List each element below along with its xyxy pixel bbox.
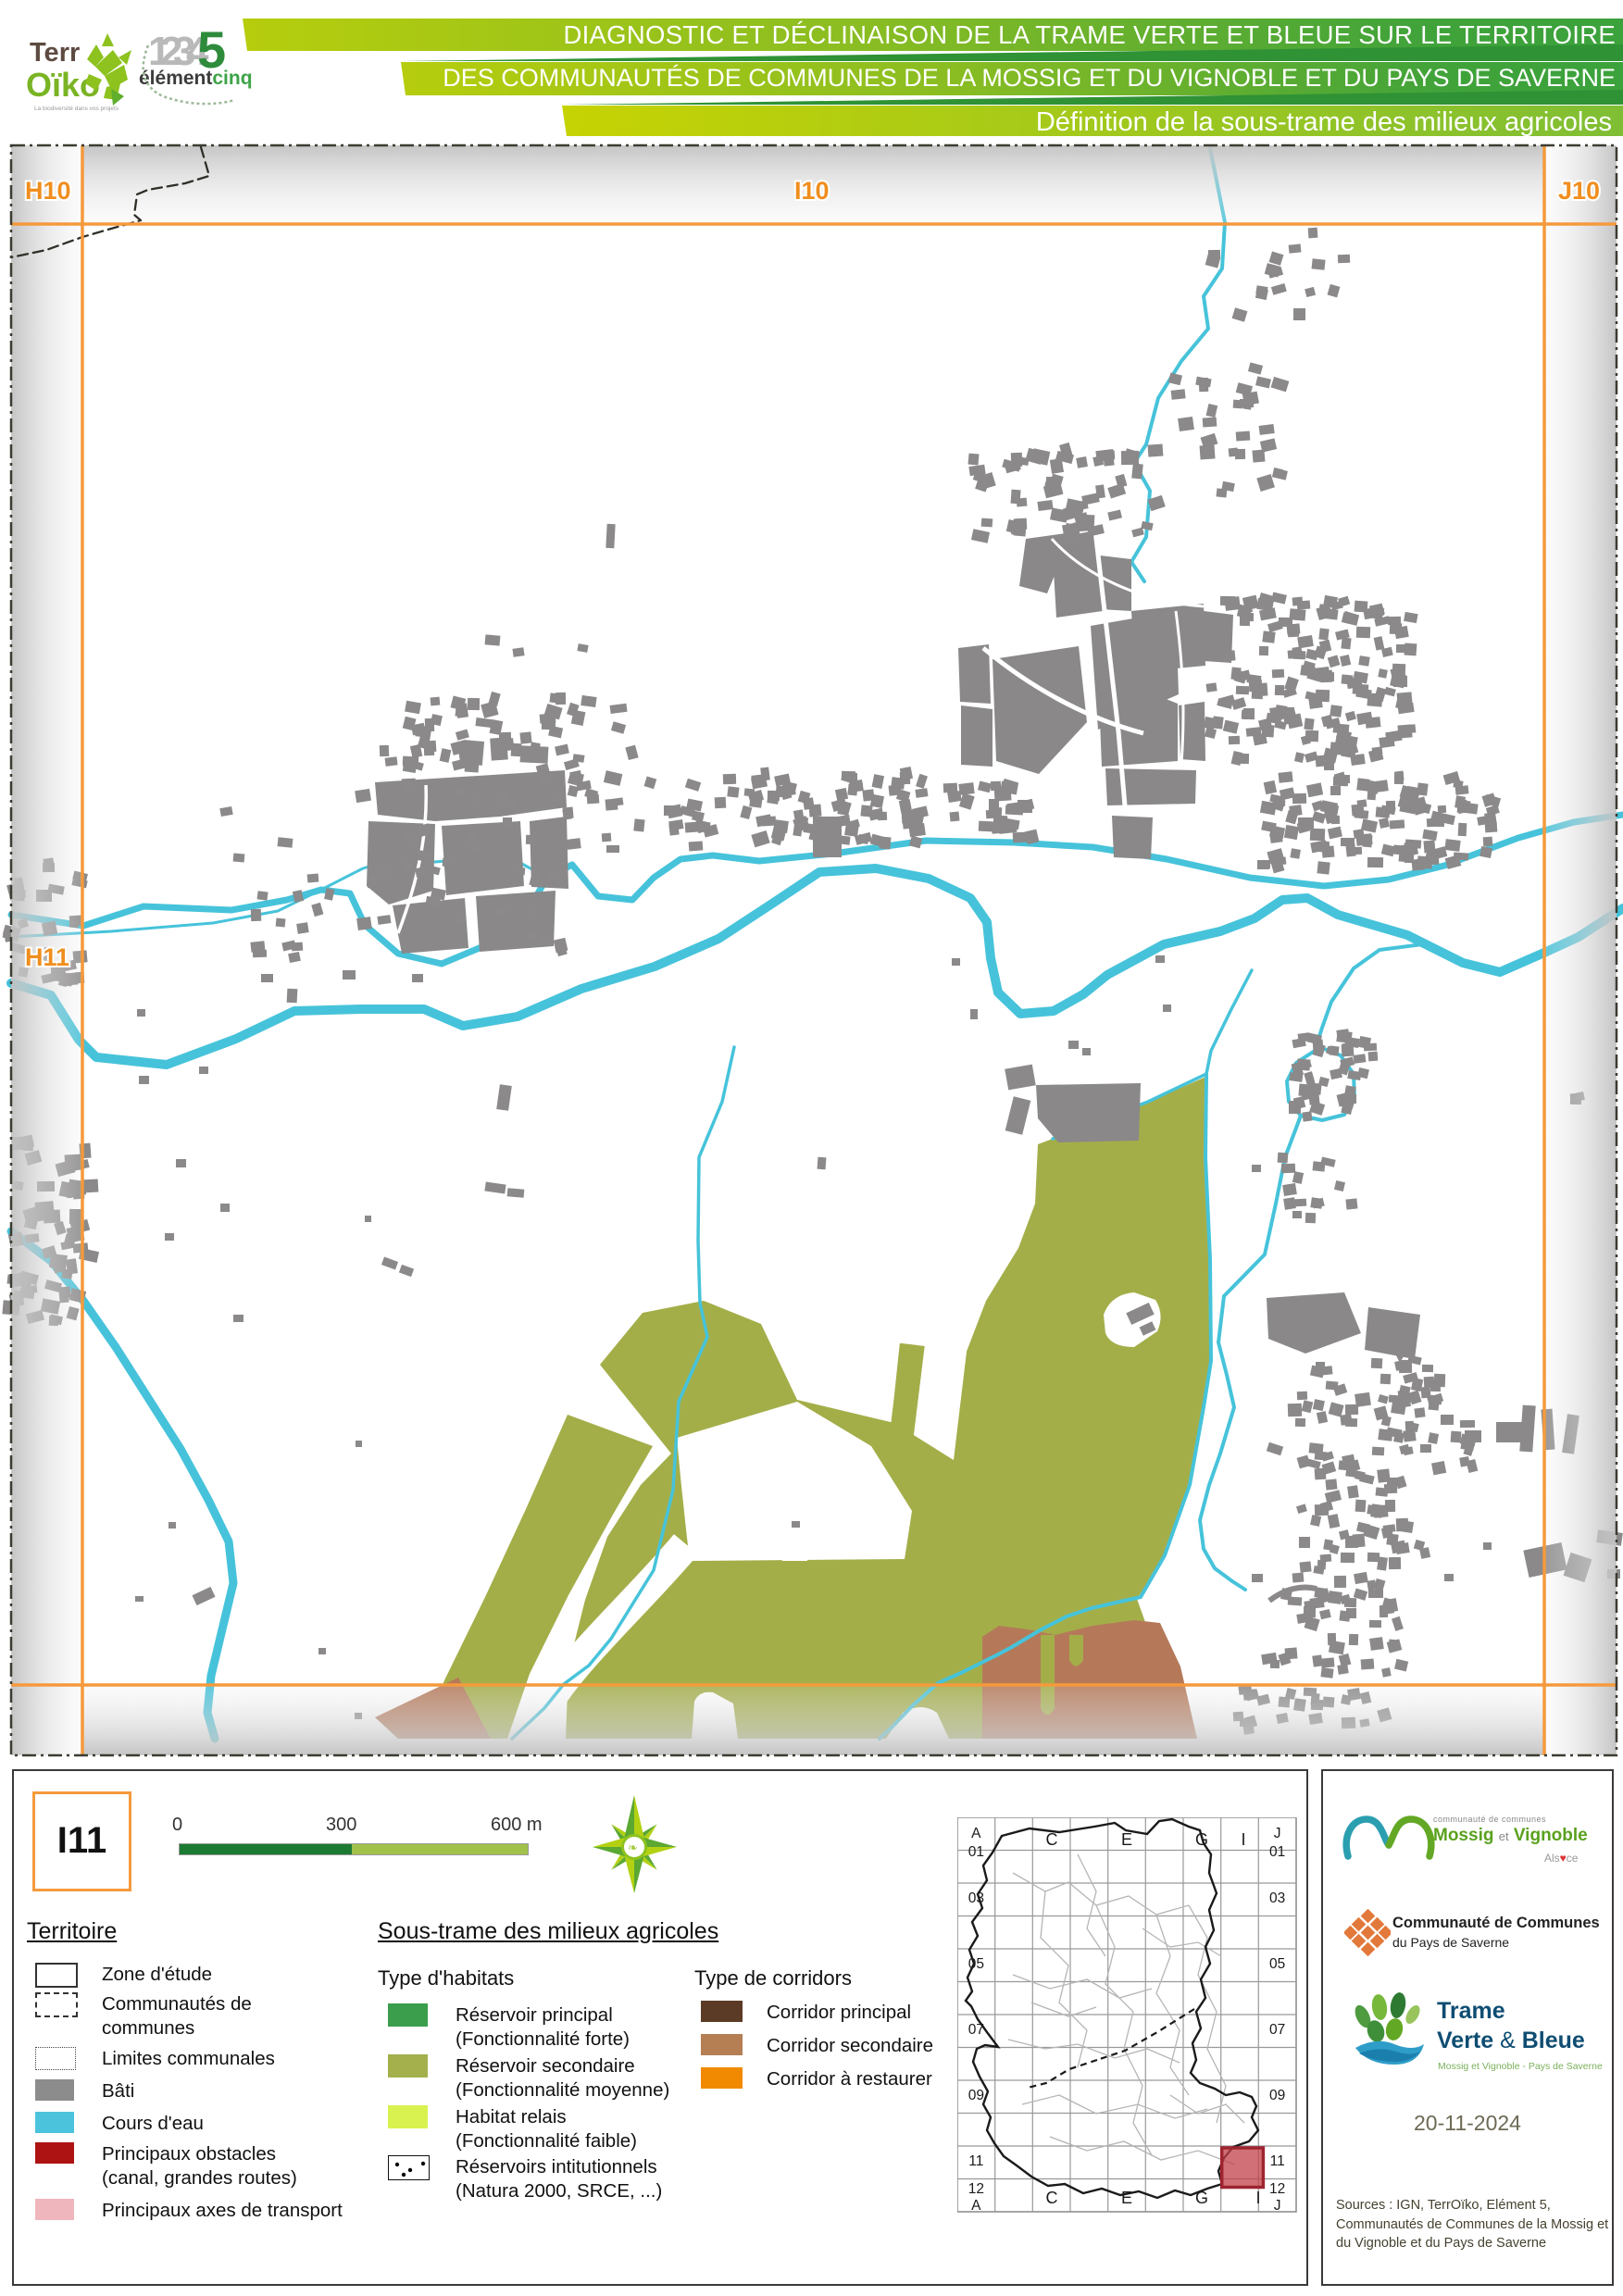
svg-text:01: 01 — [1269, 1844, 1285, 1860]
svg-text:I: I — [1255, 2189, 1260, 2207]
svg-text:03: 03 — [1269, 1890, 1285, 1906]
svg-text:J10: J10 — [1558, 177, 1600, 205]
svg-text:élémentcinq: élémentcinq — [139, 68, 253, 89]
svg-text:H10: H10 — [25, 177, 71, 205]
svg-text:01: 01 — [968, 1844, 984, 1860]
svg-text:G: G — [1195, 1830, 1208, 1849]
svg-text:A: A — [971, 1826, 981, 1841]
svg-text:07: 07 — [1269, 2022, 1285, 2038]
svg-text:12: 12 — [1269, 2181, 1285, 2197]
svg-text:A: A — [971, 2198, 981, 2213]
svg-text:05: 05 — [968, 1956, 984, 1972]
svg-text:E: E — [1121, 1830, 1132, 1849]
svg-text:C: C — [1046, 1830, 1058, 1849]
svg-text:H11: H11 — [25, 943, 69, 971]
svg-text:E: E — [1121, 2189, 1132, 2207]
svg-text:G: G — [1195, 2189, 1208, 2207]
svg-text:09: 09 — [1269, 2088, 1285, 2103]
svg-text:03: 03 — [968, 1890, 984, 1906]
svg-text:09: 09 — [968, 2088, 984, 2103]
svg-text:Terr: Terr — [30, 38, 80, 68]
svg-text:I10: I10 — [794, 177, 830, 205]
svg-text:J: J — [1274, 1826, 1281, 1841]
svg-text:❧: ❧ — [628, 1841, 638, 1854]
svg-text:07: 07 — [968, 2022, 984, 2038]
svg-text:I: I — [1241, 1830, 1245, 1849]
svg-text:J: J — [1274, 2198, 1281, 2213]
svg-text:La biodiversité dans vos proje: La biodiversité dans vos projets — [34, 106, 119, 112]
svg-text:11: 11 — [968, 2153, 983, 2169]
svg-text:C: C — [1046, 2189, 1058, 2207]
svg-text:12: 12 — [968, 2181, 984, 2197]
svg-text:11: 11 — [1270, 2153, 1285, 2169]
svg-text:05: 05 — [1269, 1956, 1285, 1972]
